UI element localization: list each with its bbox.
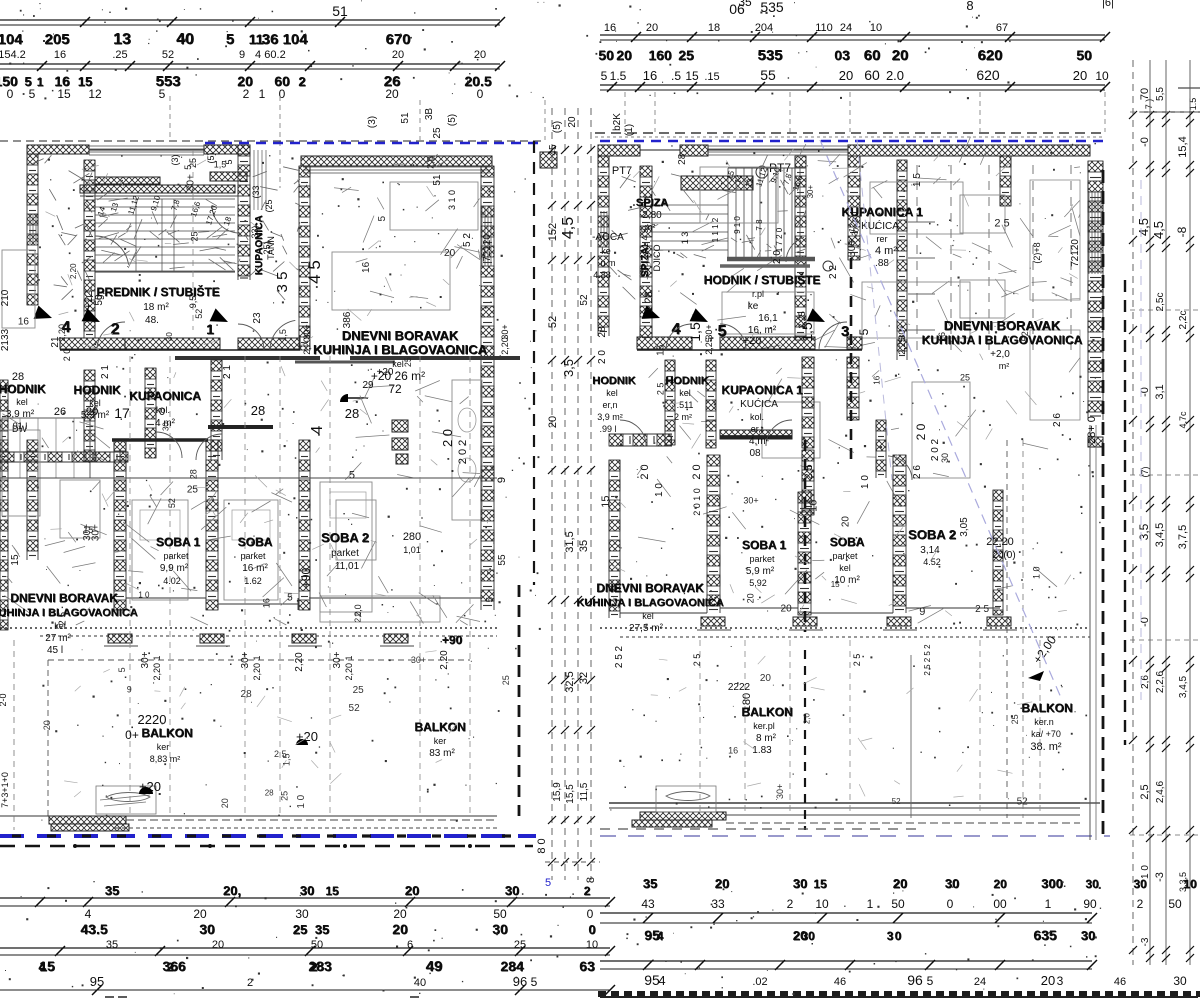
svg-text:1 28: 1 28 [643,291,655,312]
svg-text:16: 16 [728,746,738,756]
svg-text:KUPAONICA 1: KUPAONICA 1 [841,205,923,219]
svg-text:4,7c: 4,7c [1178,411,1188,429]
svg-text:ker: ker [434,736,447,746]
svg-text:-3: -3 [1154,872,1166,882]
svg-text:20: 20 [1073,68,1087,83]
svg-text:91 l: 91 l [13,421,28,431]
svg-text:rer: rer [877,234,888,244]
svg-text:1,5: 1,5 [687,322,703,342]
svg-text:15: 15 [325,884,339,898]
svg-text:20: 20 [392,49,404,61]
svg-text:2 5: 2 5 [692,654,702,667]
svg-text:4: 4 [38,959,46,974]
svg-text:2 5: 2 5 [57,612,68,626]
svg-text:2 6: 2 6 [912,465,923,479]
svg-text:2 1: 2 1 [222,365,233,379]
svg-text:DNEVNI BORAVAK: DNEVNI BORAVAK [944,318,1061,333]
svg-text:2: 2 [243,87,250,101]
svg-text:30: 30 [199,921,215,937]
svg-text:1.83: 1.83 [752,745,772,756]
svg-text:2,25: 2,25 [704,337,714,355]
svg-text:15: 15 [10,554,21,566]
svg-text:30: 30 [300,883,314,898]
svg-text:2 5 2 5 2: 2 5 2 5 2 [923,644,932,676]
svg-text:5,9 m²: 5,9 m² [746,566,775,577]
svg-text:5: 5 [531,975,538,989]
svg-text:kel: kel [679,388,691,398]
svg-text:10: 10 [1183,877,1197,891]
svg-text:4: 4 [85,907,92,921]
svg-text:ka/ +70: ka/ +70 [1031,729,1061,739]
svg-text:52: 52 [579,294,590,306]
svg-text:30: 30 [165,332,174,341]
svg-text:.02: .02 [752,976,767,988]
svg-text:25: 25 [501,675,511,685]
svg-text:0: 0 [947,897,954,911]
svg-text:+90: +90 [442,633,463,647]
svg-text:35: 35 [738,0,752,9]
svg-text:10: 10 [815,897,829,911]
svg-text:1: 1 [1045,897,1052,911]
svg-text:110: 110 [815,22,833,34]
svg-text:60: 60 [864,67,880,83]
svg-text:8 m²: 8 m² [756,733,777,744]
svg-text:kol.: kol. [750,412,764,422]
svg-text:1: 1 [37,75,44,89]
svg-text:2 1: 2 1 [100,365,111,379]
svg-text:280: 280 [403,531,421,543]
svg-text:9: 9 [127,685,132,695]
svg-text:28: 28 [189,469,199,479]
svg-text:BALKON: BALKON [141,726,192,740]
svg-text:+90: +90 [299,567,313,588]
svg-text:33: 33 [711,897,725,911]
svg-text:15: 15 [831,580,840,589]
svg-text:KUĆICA: KUĆICA [740,397,778,410]
svg-text:2,20: 2,20 [69,263,78,279]
svg-text:4: 4 [255,49,261,61]
svg-text:16 m²: 16 m² [242,563,268,574]
svg-text:2 5: 2 5 [655,383,665,396]
svg-text:2,6: 2,6 [1140,675,1151,689]
svg-text:28: 28 [251,403,265,418]
svg-text:49: 49 [426,958,443,975]
svg-text:(5): (5) [447,114,458,126]
svg-text:20: 20 [405,883,419,898]
svg-text:30: 30 [295,907,309,921]
svg-text:5: 5 [601,69,608,83]
svg-text:2 0: 2 0 [914,423,928,440]
svg-text:2,20: 2,20 [302,337,312,355]
svg-text:20: 20 [892,47,909,64]
svg-text:1.62: 1.62 [244,576,262,586]
svg-text:36: 36 [262,31,279,48]
svg-text:15: 15 [685,69,699,83]
svg-text:28: 28 [677,153,688,165]
svg-text:4.88: 4.88 [593,270,611,280]
svg-text:3,7,5: 3,7,5 [1177,525,1189,549]
svg-text:2 5: 2 5 [852,654,862,667]
svg-text:20: 20 [392,921,408,937]
svg-text:8 0: 8 0 [536,838,548,853]
svg-text:TANN: TANN [266,236,276,260]
svg-text:5: 5 [927,974,934,988]
svg-text:7 8: 7 8 [755,219,764,231]
svg-text:30: 30 [505,883,519,898]
svg-text:16: 16 [643,68,657,83]
svg-text:8: 8 [585,877,597,883]
svg-text:ker.pl: ker.pl [753,721,775,731]
svg-text:5: 5 [545,877,551,889]
svg-text:1,01: 1,01 [403,545,421,555]
svg-text:15: 15 [57,87,71,101]
svg-text:4,5: 4,5 [1136,218,1151,236]
svg-text:52: 52 [892,797,901,806]
svg-text:52: 52 [1020,331,1030,341]
svg-text:55: 55 [760,67,776,83]
svg-text:2,2,6: 2,2,6 [1155,670,1166,693]
svg-text:45: 45 [548,144,559,156]
svg-text:50: 50 [598,47,614,63]
svg-text:16,1: 16,1 [758,313,778,324]
svg-text:5,92: 5,92 [749,578,767,588]
svg-text:4: 4 [658,973,665,988]
svg-text:1: 1 [867,897,874,911]
svg-text:0: 0 [587,907,594,921]
svg-text:5: 5 [485,596,496,602]
svg-text:30+: 30+ [846,239,858,258]
svg-text:2,20: 2,20 [57,324,67,342]
svg-text:32,5: 32,5 [564,671,576,692]
svg-text:25: 25 [280,791,290,801]
svg-text:25: 25 [960,373,970,383]
svg-text:3,4,5: 3,4,5 [1178,675,1189,698]
svg-text:16: 16 [937,332,947,342]
svg-text:48.: 48. [145,315,159,326]
svg-text:2,25: 2,25 [897,337,907,355]
svg-text:20: 20 [616,47,632,63]
svg-text:46: 46 [1114,976,1126,988]
svg-text:30+: 30+ [411,655,426,665]
svg-text:08: 08 [749,448,761,459]
svg-text:-AOCA: -AOCA [592,232,624,243]
svg-text:2: 2 [111,321,120,338]
svg-text:28: 28 [265,789,274,798]
svg-text:2 5: 2 5 [975,604,989,615]
svg-text:1 3: 1 3 [680,232,690,245]
svg-text:18: 18 [708,22,720,34]
svg-text:95: 95 [90,974,104,989]
svg-text:12: 12 [88,87,102,101]
svg-text:4,5: 4,5 [1151,221,1166,239]
svg-text:2,20 1: 2,20 1 [344,655,354,680]
svg-text:9 1 0: 9 1 0 [733,216,742,234]
svg-text:25: 25 [432,127,443,139]
svg-text:386: 386 [342,311,353,328]
svg-text:28: 28 [345,406,359,421]
svg-text:18 m²: 18 m² [143,302,169,313]
svg-text:2.0: 2.0 [886,68,904,83]
svg-text:2,20: 2,20 [439,650,450,670]
svg-text:30+: 30+ [332,651,343,668]
svg-text:b2K: b2K [612,113,623,131]
svg-text:9: 9 [239,49,245,61]
svg-text:2 0 1 0: 2 0 1 0 [692,488,702,516]
svg-text:52: 52 [1017,796,1029,807]
svg-text:3,05: 3,05 [959,517,970,537]
svg-text:DNEVNI BORAVAK: DNEVNI BORAVAK [342,328,459,343]
svg-text:1 0: 1 0 [138,590,150,599]
svg-text:2,5: 2,5 [1139,784,1151,799]
svg-text:BALKON: BALKON [414,720,465,734]
svg-text:SOBA 2: SOBA 2 [321,530,369,545]
svg-text:(5): (5) [552,121,563,133]
svg-text:1 0: 1 0 [296,794,307,808]
svg-text:3: 3 [887,929,894,943]
svg-text:5: 5 [159,87,166,101]
svg-text:4 m²: 4 m² [875,245,897,257]
svg-text:52: 52 [349,703,361,714]
svg-text:96: 96 [513,974,527,989]
svg-text:KUHINJA I BLAGOVAONICA: KUHINJA I BLAGOVAONICA [576,597,723,609]
svg-text:24: 24 [974,976,986,988]
svg-text:3,9 m²: 3,9 m² [597,412,623,422]
svg-text:5: 5 [857,328,871,335]
svg-text:20: 20 [385,87,399,101]
svg-text:15: 15 [600,495,612,507]
svg-text:20: 20 [547,416,559,428]
svg-text:2,80: 2,80 [642,210,662,221]
svg-text:2,20 1: 2,20 1 [252,655,262,680]
svg-text:2 0: 2 0 [597,350,608,364]
svg-text:20: 20 [840,516,851,528]
svg-text:20: 20 [393,907,407,921]
svg-text:PREDNIK / STUBIŠTE: PREDNIK / STUBIŠTE [96,284,219,299]
svg-text:20(0): 20(0) [992,550,1015,561]
svg-text:30+: 30+ [743,495,758,505]
svg-text:20: 20 [1041,973,1055,988]
svg-text:HODNIK: HODNIK [0,382,46,396]
svg-text:35: 35 [578,540,590,552]
svg-text:(25: (25 [264,199,274,212]
svg-text:HODNIK: HODNIK [73,383,121,397]
svg-text:16: 16 [604,22,616,34]
svg-text:5: 5 [377,215,388,221]
svg-text:2 5: 2 5 [994,218,1009,230]
svg-text:51: 51 [332,3,348,19]
svg-text:BALKON: BALKON [1021,701,1072,715]
svg-text:104: 104 [282,31,308,48]
svg-text:2,0: 2,0 [426,156,436,169]
svg-text:er,n: er,n [602,400,617,410]
svg-text:16: 16 [54,49,66,61]
svg-text:20: 20 [212,939,224,951]
svg-text:52: 52 [194,309,204,319]
svg-text:4.02: 4.02 [163,576,181,586]
svg-text:20: 20 [567,116,578,128]
svg-text:ke: ke [748,301,759,312]
svg-text:26: 26 [54,406,66,418]
svg-text:DNEVNI BORAVAK: DNEVNI BORAVAK [596,581,704,595]
svg-text:(2)+8: (2)+8 [1032,242,1042,263]
svg-text:3,5: 3,5 [1137,523,1151,540]
svg-text:160: 160 [648,47,672,63]
svg-text:ker: ker [157,742,170,752]
svg-text:2,2c: 2,2c [1178,311,1189,330]
svg-text:+2,0: +2,0 [990,349,1010,360]
svg-text:20: 20 [760,673,772,684]
svg-text:SOBA 1: SOBA 1 [156,535,201,549]
svg-text:16: 16 [656,344,667,356]
svg-text:|6|: |6| [1102,0,1114,9]
svg-text:1 1 1 2: 1 1 1 2 [711,217,720,242]
svg-text:kol.: kol. [156,405,170,415]
svg-text:parket: parket [749,554,775,564]
svg-text:43.5: 43.5 [80,921,107,937]
svg-text:KUHINJA I BLAGOVAONICA: KUHINJA I BLAGOVAONICA [0,607,138,619]
svg-text:3,9 m²: 3,9 m² [6,409,35,420]
svg-text:20: 20 [715,876,729,891]
svg-text:15,5: 15,5 [565,784,576,804]
svg-text:20,: 20, [223,883,241,898]
svg-text:3 5: 3 5 [274,272,291,293]
svg-text:HODNIK: HODNIK [665,375,708,387]
svg-text:parket: parket [832,551,858,561]
svg-text:2,25: 2,25 [797,311,807,329]
svg-text:25: 25 [514,939,526,951]
svg-text:27 m²: 27 m² [45,633,71,644]
svg-text:30: 30 [162,422,171,431]
svg-text:5: 5 [349,470,355,482]
svg-text:205: 205 [44,31,69,48]
svg-text:2,0: 2,0 [803,712,812,724]
svg-text:2-0: 2-0 [0,693,8,706]
svg-text:+20 26 m²: +20 26 m² [371,369,425,383]
svg-text:1 1: 1 1 [643,194,655,209]
svg-text:u m: u m [600,258,615,268]
svg-text:31,5: 31,5 [564,531,576,552]
svg-text:51: 51 [400,112,411,124]
svg-text:152: 152 [547,223,559,241]
svg-text:DJICO: DJICO [652,245,662,272]
svg-text:-0: -0 [1139,137,1151,147]
svg-text:32: 32 [578,672,590,684]
svg-text:30: 30 [945,876,959,891]
svg-text:670: 670 [385,31,410,48]
svg-text:2 2: 2 2 [828,265,839,279]
svg-text:10: 10 [586,939,598,951]
svg-text:72120: 72120 [482,234,493,262]
svg-text:4: 4 [309,425,326,434]
svg-text:3,4,5: 3,4,5 [1154,523,1166,547]
svg-text:0: 0 [477,87,484,101]
svg-text:535: 535 [757,47,782,64]
svg-text:284: 284 [500,958,524,974]
svg-text:1 0: 1 0 [654,483,665,497]
svg-text:16: 16 [18,316,30,327]
svg-text:HODNIK / STUBIŠTE: HODNIK / STUBIŠTE [704,272,821,287]
svg-text:2222: 2222 [728,682,751,693]
svg-text:25: 25 [403,357,413,367]
svg-text:72: 72 [388,382,402,396]
svg-text:2,20: 2,20 [500,337,510,355]
svg-text:1: 1 [259,87,266,101]
svg-text:3,5: 3,5 [561,359,576,377]
svg-text:72120: 72120 [1070,239,1081,267]
svg-text:KUPAONICA 1: KUPAONICA 1 [721,383,803,397]
svg-text:2: 2 [1137,897,1144,911]
svg-text:25: 25 [353,685,365,696]
svg-text:KUPAONICA: KUPAONICA [254,215,265,275]
svg-text:2,5c: 2,5c [1155,293,1166,312]
svg-text:1 0: 1 0 [1032,566,1042,579]
svg-text:25: 25 [293,922,307,937]
svg-text:22,20: 22,20 [986,536,1014,548]
svg-text:4,m²: 4,m² [749,436,770,447]
svg-text:SOBA 2: SOBA 2 [908,527,956,542]
svg-text:1,5: 1,5 [278,329,288,342]
svg-text:HODNIK: HODNIK [592,375,635,387]
svg-text:52: 52 [167,498,177,508]
svg-text:17: 17 [114,405,130,421]
svg-text:9,9 m²: 9,9 m² [160,563,189,574]
svg-text:2,0: 2,0 [353,611,362,623]
svg-text:03: 03 [834,47,850,63]
svg-text:.511: .511 [677,400,694,410]
svg-text:2 5 2: 2 5 2 [614,645,625,668]
svg-text:2 m²: 2 m² [674,412,692,422]
svg-text:.88: .88 [875,258,889,269]
svg-text:.25: .25 [112,49,127,61]
svg-text:r.pl: r.pl [752,289,764,299]
svg-text:154.2: 154.2 [0,49,26,61]
svg-text:(1): (1) [624,124,635,136]
svg-text:2: 2 [311,960,318,974]
svg-text:.99 l: .99 l [599,424,616,434]
svg-text:96: 96 [907,972,923,988]
svg-text:30: 30 [1081,928,1095,943]
svg-text:20: 20 [893,876,907,891]
svg-text:1: 1 [206,321,214,337]
svg-text:20: 20 [220,798,230,808]
svg-text:(33: (33 [251,185,261,198]
svg-text:30: 30 [793,876,807,891]
svg-text:.15: .15 [704,71,719,83]
svg-text:50: 50 [1076,47,1092,63]
svg-text:1 5: 1 5 [912,173,923,187]
svg-text:5: 5 [226,31,234,48]
svg-text:25: 25 [190,231,200,241]
svg-text:23: 23 [252,312,263,324]
svg-text:-8: -8 [1175,226,1189,237]
svg-text:(3): (3) [170,154,180,165]
svg-text:7+3+1+0: 7+3+1+0 [0,772,10,808]
svg-text:2 6: 2 6 [1052,413,1063,427]
svg-text:SOBA 1: SOBA 1 [742,538,787,552]
svg-text:20: 20 [993,877,1007,891]
svg-text:2,4,6: 2,4,6 [1155,780,1166,803]
svg-text:63: 63 [579,958,595,974]
svg-text:50: 50 [891,897,905,911]
svg-text:kel: kel [16,397,28,407]
svg-text:15: 15 [813,877,827,891]
svg-text:er,t: er,t [751,424,764,434]
svg-text:3,1: 3,1 [1154,384,1166,399]
svg-text:0: 0 [588,922,595,937]
svg-text:0: 0 [7,87,14,101]
svg-text:30: 30 [492,921,508,937]
svg-text:2: 2 [298,74,305,89]
